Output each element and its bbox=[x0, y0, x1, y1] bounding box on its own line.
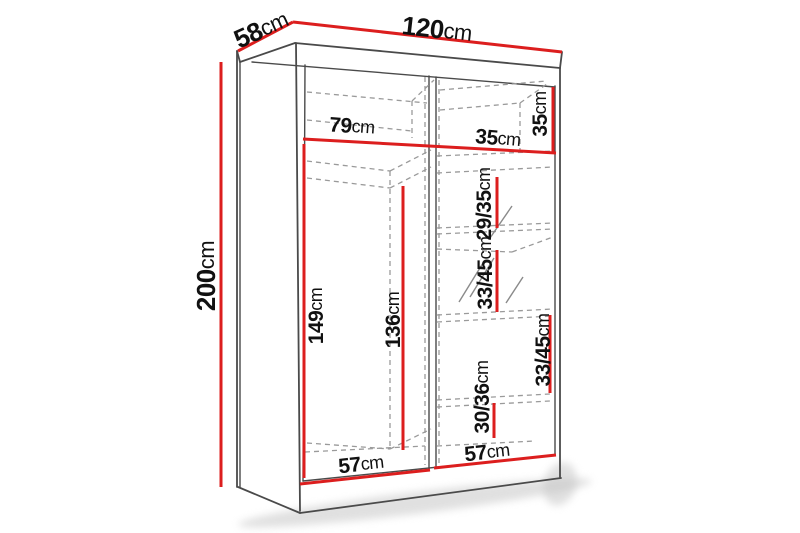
shelf-5-front bbox=[437, 394, 550, 400]
hanging-rail-back bbox=[307, 178, 390, 188]
label-top-compartment-35: 35cm bbox=[529, 91, 552, 136]
label-hanging-149: 149cm bbox=[305, 288, 328, 345]
label-gap-33-45-mid: 33/45cm bbox=[474, 236, 497, 309]
shelf-1-back bbox=[437, 167, 553, 173]
wardrobe-dimension-diagram: 120cm 58cm 200cm 79cm 35cm 35cm 29/35cm … bbox=[0, 0, 800, 533]
label-top-shelf-79: 79cm bbox=[329, 113, 376, 139]
top-right-shelf-back bbox=[440, 103, 520, 110]
left-front-edge bbox=[296, 43, 300, 511]
label-hanging-136: 136cm bbox=[382, 292, 405, 349]
top-left-depth-slant bbox=[412, 80, 434, 101]
label-top-shelf-35: 35cm bbox=[474, 125, 521, 152]
bottom-left-slant-edge bbox=[238, 487, 300, 513]
label-height-200: 200cm bbox=[191, 241, 221, 311]
measure-lines bbox=[221, 22, 562, 487]
mirror-slash bbox=[506, 277, 523, 303]
shelf-3-depth-slant bbox=[512, 237, 553, 252]
diagram-canvas: 120cm 58cm 200cm 79cm 35cm 35cm 29/35cm … bbox=[0, 0, 800, 533]
top-panel-underside-edge bbox=[252, 62, 555, 87]
shadow-ellipse bbox=[237, 470, 593, 533]
label-gap-29-35: 29/35cm bbox=[473, 167, 496, 240]
label-width-120: 120cm bbox=[400, 10, 473, 48]
label-gap-30-36: 30/36cm bbox=[471, 360, 494, 433]
label-gap-33-45-right: 33/45cm bbox=[532, 313, 555, 386]
dimension-labels: 120cm 58cm 200cm 79cm 35cm 35cm 29/35cm … bbox=[191, 4, 555, 478]
hanging-rail-front bbox=[307, 161, 390, 171]
right-top-cap bbox=[560, 52, 562, 68]
top-left-back-edge bbox=[307, 92, 427, 103]
